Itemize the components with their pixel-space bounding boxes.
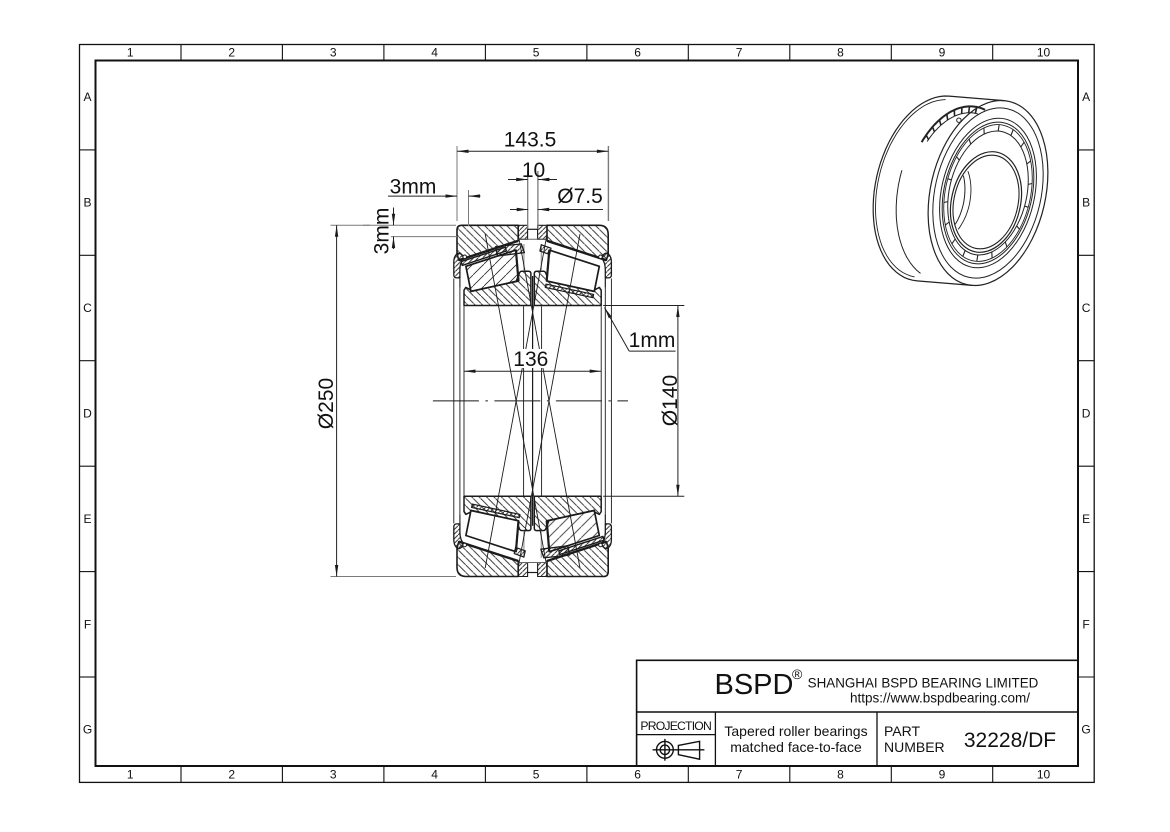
svg-text:6: 6 (634, 46, 641, 60)
svg-text:D: D (1082, 406, 1091, 420)
svg-text:B: B (83, 196, 91, 210)
svg-text:1mm: 1mm (629, 329, 676, 352)
svg-text:10: 10 (522, 159, 545, 182)
svg-text:10: 10 (1037, 768, 1051, 782)
svg-text:C: C (1082, 301, 1091, 315)
svg-text:F: F (1082, 617, 1089, 631)
svg-text:7: 7 (736, 768, 743, 782)
svg-text:E: E (83, 512, 91, 526)
svg-text:3mm: 3mm (371, 208, 394, 255)
svg-text:https://www.bspdbearing.com/: https://www.bspdbearing.com/ (850, 691, 1030, 706)
svg-text:1: 1 (127, 768, 134, 782)
svg-text:C: C (83, 301, 92, 315)
svg-text:3: 3 (330, 46, 337, 60)
svg-text:NUMBER: NUMBER (884, 739, 945, 755)
svg-text:B: B (1082, 196, 1090, 210)
svg-text:F: F (84, 617, 91, 631)
svg-text:9: 9 (939, 768, 946, 782)
svg-text:32228/DF: 32228/DF (964, 729, 1056, 752)
svg-text:G: G (1081, 723, 1090, 737)
svg-text:PROJECTION: PROJECTION (640, 719, 711, 733)
svg-text:5: 5 (533, 768, 540, 782)
svg-text:G: G (83, 723, 92, 737)
svg-text:Tapered roller bearings: Tapered roller bearings (724, 723, 867, 739)
svg-text:4: 4 (431, 46, 438, 60)
svg-text:E: E (1082, 512, 1090, 526)
svg-text:5: 5 (533, 46, 540, 60)
svg-text:8: 8 (837, 46, 844, 60)
svg-text:136: 136 (513, 348, 548, 371)
svg-text:3: 3 (330, 768, 337, 782)
svg-text:7: 7 (736, 46, 743, 60)
svg-text:Ø250: Ø250 (315, 378, 338, 429)
svg-text:Ø7.5: Ø7.5 (557, 185, 603, 208)
svg-text:10: 10 (1037, 46, 1051, 60)
svg-text:3mm: 3mm (390, 176, 437, 199)
svg-text:Ø140: Ø140 (659, 375, 682, 426)
svg-text:PART: PART (884, 723, 920, 739)
svg-text:2: 2 (228, 768, 235, 782)
svg-text:BSPD: BSPD (715, 669, 794, 701)
svg-text:4: 4 (431, 768, 438, 782)
svg-text:8: 8 (837, 768, 844, 782)
svg-text:A: A (83, 90, 91, 104)
svg-text:matched face-to-face: matched face-to-face (730, 739, 862, 755)
svg-text:SHANGHAI BSPD BEARING LIMITED: SHANGHAI BSPD BEARING LIMITED (808, 676, 1039, 691)
svg-text:1: 1 (127, 46, 134, 60)
svg-text:2: 2 (228, 46, 235, 60)
svg-text:®: ® (792, 666, 803, 682)
svg-text:D: D (83, 406, 92, 420)
svg-text:9: 9 (939, 46, 946, 60)
svg-text:6: 6 (634, 768, 641, 782)
svg-text:A: A (1082, 90, 1090, 104)
svg-text:143.5: 143.5 (504, 129, 557, 152)
